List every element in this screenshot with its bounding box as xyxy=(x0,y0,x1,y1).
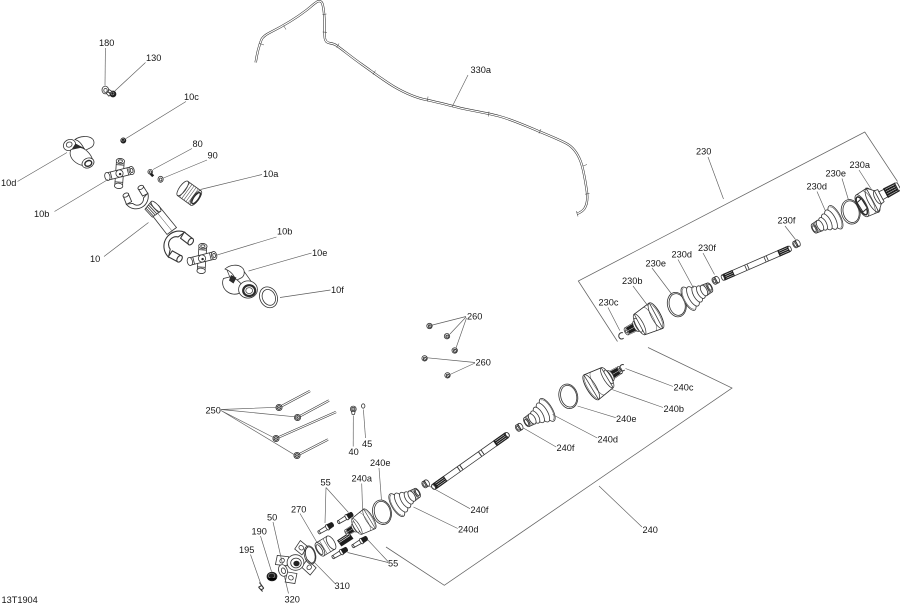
svg-text:130: 130 xyxy=(146,53,161,63)
svg-text:195: 195 xyxy=(239,545,254,555)
svg-text:230a: 230a xyxy=(850,160,871,170)
svg-text:55: 55 xyxy=(321,478,331,488)
svg-text:10c: 10c xyxy=(184,92,199,102)
svg-text:50: 50 xyxy=(267,513,277,523)
svg-text:260: 260 xyxy=(467,312,482,322)
svg-text:250: 250 xyxy=(206,406,221,416)
svg-text:230e: 230e xyxy=(826,169,846,179)
svg-text:10e: 10e xyxy=(312,248,327,258)
svg-text:240e: 240e xyxy=(370,458,390,468)
svg-text:190: 190 xyxy=(252,527,267,537)
svg-text:10f: 10f xyxy=(331,285,344,295)
svg-text:55: 55 xyxy=(388,559,398,569)
svg-text:10b: 10b xyxy=(277,227,292,237)
svg-text:180: 180 xyxy=(99,38,114,48)
svg-text:10a: 10a xyxy=(263,169,279,179)
svg-text:240a: 240a xyxy=(352,474,373,484)
svg-text:260: 260 xyxy=(476,358,491,368)
svg-text:230e: 230e xyxy=(646,259,666,269)
svg-text:40: 40 xyxy=(349,447,359,457)
svg-text:230c: 230c xyxy=(599,298,619,308)
svg-text:10: 10 xyxy=(90,254,100,264)
svg-text:310: 310 xyxy=(335,581,350,591)
svg-text:80: 80 xyxy=(193,139,203,149)
svg-text:240e: 240e xyxy=(616,414,636,424)
svg-text:240f: 240f xyxy=(557,443,575,453)
svg-text:240b: 240b xyxy=(664,404,684,414)
svg-text:320: 320 xyxy=(285,595,300,605)
svg-text:230d: 230d xyxy=(807,182,827,192)
svg-text:90: 90 xyxy=(208,151,218,161)
svg-text:230f: 230f xyxy=(778,216,796,226)
svg-text:240: 240 xyxy=(643,525,658,535)
svg-text:230: 230 xyxy=(696,147,711,157)
svg-text:240c: 240c xyxy=(674,383,694,393)
svg-text:230f: 230f xyxy=(698,243,716,253)
svg-text:270: 270 xyxy=(291,505,306,515)
svg-text:240d: 240d xyxy=(598,435,618,445)
svg-text:10d: 10d xyxy=(1,178,16,188)
svg-text:230b: 230b xyxy=(622,276,642,286)
svg-text:240f: 240f xyxy=(471,505,489,515)
svg-text:230d: 230d xyxy=(672,250,692,260)
svg-text:13T1904: 13T1904 xyxy=(2,595,38,605)
svg-text:45: 45 xyxy=(362,439,372,449)
svg-text:330a: 330a xyxy=(471,65,492,75)
svg-text:10b: 10b xyxy=(34,209,49,219)
svg-text:240d: 240d xyxy=(458,525,478,535)
